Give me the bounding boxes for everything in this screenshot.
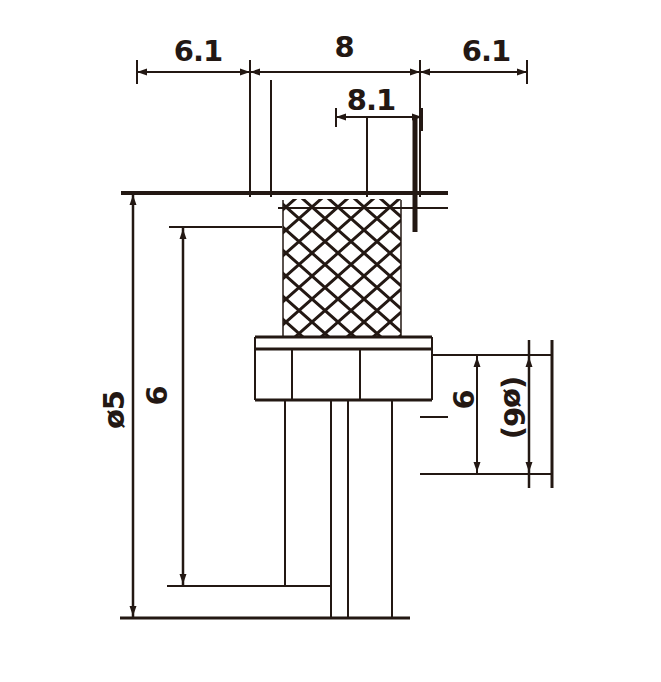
dim-label-top-middle: 8 xyxy=(334,33,353,62)
dimension-arrowhead xyxy=(517,69,527,76)
dim-label-top-left: 6.1 xyxy=(174,37,222,66)
drawing-geometry xyxy=(120,60,552,618)
dimension-arrowhead xyxy=(240,69,250,76)
dimension-arrowhead xyxy=(336,114,346,121)
dimension-arrowhead xyxy=(130,195,137,205)
dimension-arrowhead xyxy=(250,69,260,76)
thread-hatch-region xyxy=(283,199,401,336)
dimension-arrowhead xyxy=(137,69,147,76)
dimension-arrowhead xyxy=(474,357,481,367)
dim-label-left-inner: 6 xyxy=(143,386,172,405)
dim-label-right-inner: 6 xyxy=(450,390,479,409)
dim-label-right-outer: (ø6) xyxy=(499,376,528,439)
dimension-arrowhead xyxy=(180,574,187,584)
dimension-arrowhead xyxy=(526,462,533,472)
dimension-arrowhead xyxy=(180,229,187,239)
technical-drawing-canvas xyxy=(0,0,661,682)
dimension-arrowhead xyxy=(130,606,137,616)
drawing-stage: 6.1 8 6.1 8.1 ø5 6 6 (ø6) xyxy=(0,0,661,682)
dimension-arrowhead xyxy=(474,462,481,472)
dimension-arrowhead xyxy=(410,69,420,76)
dimension-arrowhead xyxy=(526,357,533,367)
dim-label-top-right: 6.1 xyxy=(462,37,510,66)
dimension-arrowhead xyxy=(420,69,430,76)
dim-label-upper-inner: 8.1 xyxy=(347,86,395,115)
dim-label-left-outer: ø5 xyxy=(100,391,129,429)
